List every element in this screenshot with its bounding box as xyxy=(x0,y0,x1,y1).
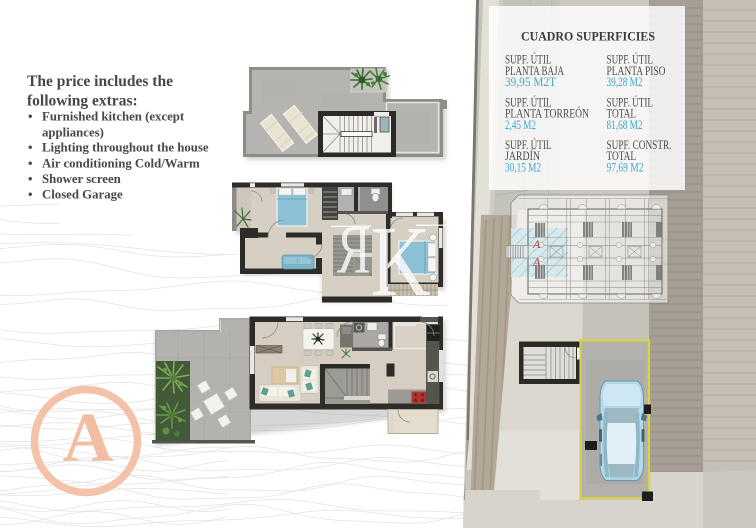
svg-text:Closed Garage: Closed Garage xyxy=(42,188,123,202)
svg-text:•: • xyxy=(28,188,32,202)
svg-text:•: • xyxy=(28,156,32,170)
svg-text:•: • xyxy=(28,141,32,155)
svg-text:•: • xyxy=(28,172,32,186)
svg-text:The price includes the: The price includes the xyxy=(27,73,173,90)
svg-text:Lighting throughout the house: Lighting throughout the house xyxy=(42,141,209,155)
svg-text:30,15 M2: 30,15 M2 xyxy=(505,160,541,174)
svg-text:A: A xyxy=(532,237,541,251)
svg-text:A: A xyxy=(532,255,541,269)
svg-text:K: K xyxy=(371,205,431,317)
svg-text:97,69 M2: 97,69 M2 xyxy=(607,160,644,174)
svg-text:Air conditioning Cold/Warm: Air conditioning Cold/Warm xyxy=(42,156,200,170)
svg-text:Furnished kitchen (except: Furnished kitchen (except xyxy=(42,110,185,124)
svg-text:2,45 M2: 2,45 M2 xyxy=(505,118,536,132)
svg-text:•: • xyxy=(28,110,32,124)
svg-text:Я: Я xyxy=(337,212,371,289)
svg-text:39,95 M2T: 39,95 M2T xyxy=(505,75,557,89)
svg-text:following extras:: following extras: xyxy=(27,93,138,110)
svg-text:appliances): appliances) xyxy=(42,126,104,140)
svg-text:Shower screen: Shower screen xyxy=(42,172,121,186)
svg-text:CUADRO SUPERFICIES: CUADRO SUPERFICIES xyxy=(521,29,655,44)
svg-text:81,68 M2: 81,68 M2 xyxy=(607,118,643,132)
svg-text:A: A xyxy=(63,400,114,477)
svg-text:39,28 M2: 39,28 M2 xyxy=(607,75,643,89)
